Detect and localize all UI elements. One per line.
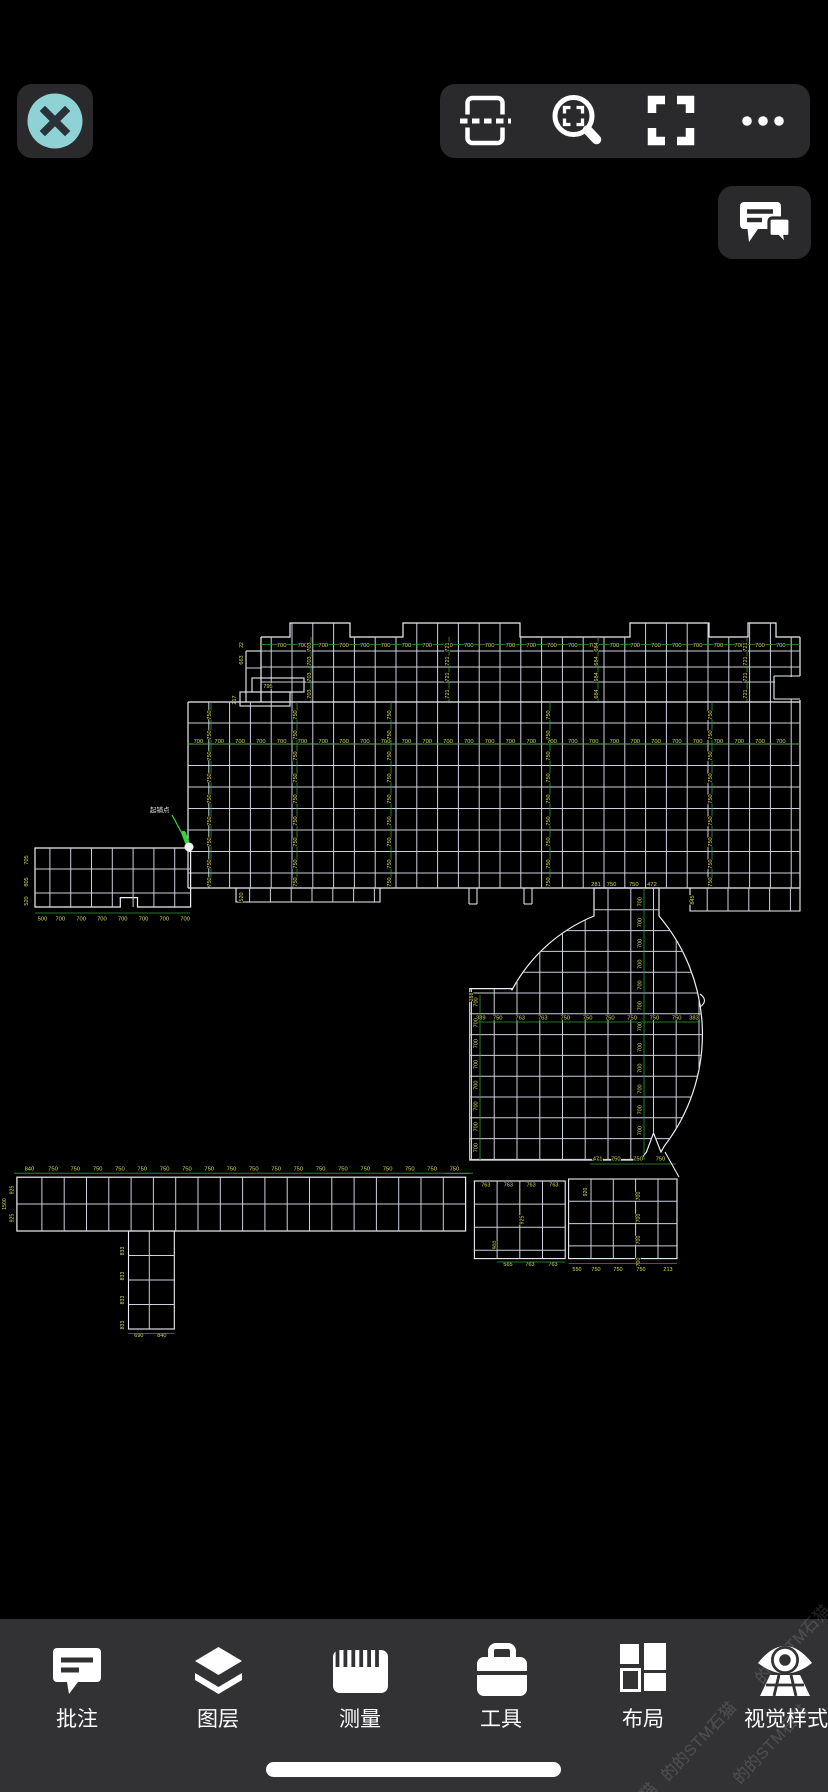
svg-text:833: 833 <box>120 1296 126 1305</box>
svg-text:471: 471 <box>593 1157 603 1163</box>
svg-text:700: 700 <box>638 1105 644 1114</box>
svg-text:845: 845 <box>690 895 696 904</box>
svg-text:750: 750 <box>293 710 299 719</box>
svg-text:700: 700 <box>474 1060 480 1069</box>
svg-text:703: 703 <box>307 689 313 698</box>
svg-text:750: 750 <box>271 1167 281 1173</box>
svg-text:750: 750 <box>207 794 213 803</box>
svg-text:700: 700 <box>734 739 744 745</box>
svg-text:700: 700 <box>638 1064 644 1073</box>
svg-text:750: 750 <box>293 773 299 782</box>
svg-text:700: 700 <box>474 1101 480 1110</box>
svg-text:721: 721 <box>445 672 451 681</box>
svg-text:721: 721 <box>445 689 451 698</box>
svg-text:281: 281 <box>591 882 601 888</box>
svg-text:500: 500 <box>38 917 48 923</box>
svg-text:925: 925 <box>10 1186 16 1195</box>
svg-text:750: 750 <box>591 1267 600 1273</box>
svg-text:705: 705 <box>24 855 30 864</box>
svg-text:700: 700 <box>318 739 328 745</box>
svg-text:700: 700 <box>474 1018 480 1027</box>
svg-text:925: 925 <box>519 1216 525 1225</box>
svg-text:750: 750 <box>48 1167 58 1173</box>
svg-text:750: 750 <box>207 730 213 739</box>
svg-text:750: 750 <box>546 751 552 760</box>
svg-text:700: 700 <box>443 739 453 745</box>
svg-text:213: 213 <box>663 1267 672 1273</box>
svg-text:700: 700 <box>118 917 128 923</box>
svg-text:920: 920 <box>583 1188 589 1197</box>
svg-text:700: 700 <box>610 739 620 745</box>
svg-text:700: 700 <box>638 1084 644 1093</box>
svg-text:750: 750 <box>450 1167 460 1173</box>
svg-text:750: 750 <box>182 1167 192 1173</box>
svg-text:700: 700 <box>638 918 644 927</box>
svg-text:750: 750 <box>387 837 393 846</box>
svg-text:750: 750 <box>708 710 714 719</box>
svg-text:750: 750 <box>293 730 299 739</box>
svg-text:700: 700 <box>636 1192 642 1201</box>
svg-text:700: 700 <box>381 643 391 649</box>
svg-text:750: 750 <box>70 1167 80 1173</box>
svg-text:750: 750 <box>207 816 213 825</box>
svg-text:700: 700 <box>360 739 370 745</box>
svg-text:700: 700 <box>194 739 204 745</box>
svg-text:700: 700 <box>485 739 495 745</box>
svg-text:703: 703 <box>307 642 313 651</box>
svg-text:700: 700 <box>755 739 765 745</box>
svg-text:763: 763 <box>504 1183 513 1189</box>
svg-text:750: 750 <box>546 773 552 782</box>
svg-text:700: 700 <box>776 739 786 745</box>
svg-text:700: 700 <box>318 643 328 649</box>
svg-text:805: 805 <box>24 877 30 886</box>
svg-text:700: 700 <box>693 739 703 745</box>
svg-text:700: 700 <box>693 643 703 649</box>
svg-text:750: 750 <box>405 1167 415 1173</box>
svg-text:700: 700 <box>651 643 661 649</box>
svg-text:750: 750 <box>546 816 552 825</box>
svg-text:763: 763 <box>548 1262 557 1268</box>
svg-text:763: 763 <box>527 1183 536 1189</box>
svg-text:750: 750 <box>546 730 552 739</box>
svg-text:750: 750 <box>115 1167 125 1173</box>
svg-text:750: 750 <box>633 1157 643 1163</box>
svg-text:750: 750 <box>607 882 617 888</box>
svg-text:1500: 1500 <box>2 1198 8 1210</box>
svg-text:750: 750 <box>613 1267 622 1273</box>
svg-text:900: 900 <box>493 1241 499 1250</box>
svg-text:700: 700 <box>464 739 474 745</box>
svg-text:700: 700 <box>422 643 432 649</box>
svg-text:750: 750 <box>383 1167 393 1173</box>
svg-text:750: 750 <box>207 773 213 782</box>
svg-text:700: 700 <box>589 739 599 745</box>
svg-text:750: 750 <box>708 816 714 825</box>
svg-text:700: 700 <box>636 1236 642 1245</box>
svg-text:750: 750 <box>387 859 393 868</box>
svg-text:750: 750 <box>493 1016 503 1022</box>
svg-text:750: 750 <box>387 794 393 803</box>
svg-text:684: 684 <box>594 656 600 665</box>
svg-text:684: 684 <box>594 689 600 698</box>
svg-text:700: 700 <box>256 739 266 745</box>
svg-text:750: 750 <box>546 794 552 803</box>
svg-text:700: 700 <box>402 739 412 745</box>
svg-text:700: 700 <box>474 1143 480 1152</box>
svg-text:700: 700 <box>638 1001 644 1010</box>
svg-text:750: 750 <box>387 816 393 825</box>
svg-text:700: 700 <box>610 643 620 649</box>
svg-text:700: 700 <box>638 1022 644 1031</box>
svg-text:700: 700 <box>636 1214 642 1223</box>
svg-text:833: 833 <box>120 1321 126 1330</box>
svg-text:795: 795 <box>263 684 272 690</box>
svg-text:763: 763 <box>549 1183 558 1189</box>
svg-text:750: 750 <box>293 794 299 803</box>
svg-text:700: 700 <box>474 1081 480 1090</box>
svg-text:700: 700 <box>526 643 536 649</box>
svg-text:750: 750 <box>605 1016 615 1022</box>
svg-text:750: 750 <box>546 710 552 719</box>
svg-text:721: 721 <box>445 656 451 665</box>
svg-text:700: 700 <box>638 939 644 948</box>
svg-text:750: 750 <box>583 1016 593 1022</box>
svg-text:763: 763 <box>481 1183 490 1189</box>
svg-text:750: 750 <box>611 1157 621 1163</box>
svg-text:750: 750 <box>204 1167 214 1173</box>
svg-text:750: 750 <box>656 1157 666 1163</box>
svg-text:750: 750 <box>293 859 299 868</box>
svg-text:520: 520 <box>239 892 245 901</box>
svg-text:750: 750 <box>293 1167 303 1173</box>
svg-text:750: 750 <box>249 1167 259 1173</box>
svg-text:700: 700 <box>277 643 287 649</box>
svg-text:700: 700 <box>76 917 86 923</box>
svg-text:750: 750 <box>708 837 714 846</box>
svg-text:472: 472 <box>647 882 657 888</box>
svg-text:750: 750 <box>672 1016 682 1022</box>
svg-text:700: 700 <box>568 739 578 745</box>
svg-text:925: 925 <box>10 1214 16 1223</box>
svg-text:700: 700 <box>159 917 169 923</box>
svg-text:700: 700 <box>714 643 724 649</box>
svg-text:750: 750 <box>629 882 639 888</box>
svg-text:700: 700 <box>638 897 644 906</box>
svg-text:565: 565 <box>503 1262 512 1268</box>
svg-text:663: 663 <box>239 655 245 664</box>
svg-text:750: 750 <box>636 1267 645 1273</box>
svg-text:起铺点: 起铺点 <box>150 805 170 814</box>
svg-text:700: 700 <box>755 643 765 649</box>
svg-text:750: 750 <box>546 837 552 846</box>
svg-text:550: 550 <box>572 1267 581 1273</box>
svg-text:750: 750 <box>650 1016 660 1022</box>
svg-text:288: 288 <box>469 993 475 1002</box>
svg-text:750: 750 <box>293 877 299 886</box>
svg-text:700: 700 <box>506 643 516 649</box>
svg-text:22: 22 <box>239 642 245 648</box>
svg-text:700: 700 <box>651 739 661 745</box>
svg-text:750: 750 <box>387 751 393 760</box>
svg-text:703: 703 <box>307 672 313 681</box>
svg-text:750: 750 <box>207 837 213 846</box>
svg-text:721: 721 <box>743 642 749 651</box>
svg-text:750: 750 <box>708 794 714 803</box>
svg-text:750: 750 <box>207 710 213 719</box>
svg-text:750: 750 <box>708 859 714 868</box>
svg-text:684: 684 <box>594 642 600 651</box>
svg-text:763: 763 <box>515 1016 525 1022</box>
svg-text:700: 700 <box>180 917 190 923</box>
svg-text:750: 750 <box>560 1016 570 1022</box>
svg-text:700: 700 <box>672 643 682 649</box>
svg-text:700: 700 <box>474 1039 480 1048</box>
svg-text:700: 700 <box>638 980 644 989</box>
svg-text:833: 833 <box>120 1247 126 1256</box>
svg-text:700: 700 <box>97 917 107 923</box>
svg-text:750: 750 <box>627 1016 637 1022</box>
svg-text:700: 700 <box>214 739 224 745</box>
svg-text:700: 700 <box>526 739 536 745</box>
svg-text:721: 721 <box>445 642 451 651</box>
svg-text:700: 700 <box>464 643 474 649</box>
svg-text:700: 700 <box>485 643 495 649</box>
svg-text:700: 700 <box>298 739 308 745</box>
svg-text:383: 383 <box>689 1016 699 1022</box>
svg-text:750: 750 <box>137 1167 147 1173</box>
svg-text:750: 750 <box>546 877 552 886</box>
svg-text:750: 750 <box>227 1167 237 1173</box>
svg-text:700: 700 <box>474 1122 480 1131</box>
svg-text:700: 700 <box>638 1126 644 1135</box>
svg-text:700: 700 <box>339 739 349 745</box>
svg-text:750: 750 <box>316 1167 326 1173</box>
svg-text:750: 750 <box>207 877 213 886</box>
svg-text:700: 700 <box>298 643 308 649</box>
svg-text:750: 750 <box>160 1167 170 1173</box>
svg-text:700: 700 <box>339 643 349 649</box>
svg-text:700: 700 <box>547 643 557 649</box>
svg-text:750: 750 <box>93 1167 103 1173</box>
svg-text:684: 684 <box>594 672 600 681</box>
svg-text:700: 700 <box>277 739 287 745</box>
svg-text:750: 750 <box>207 751 213 760</box>
svg-text:750: 750 <box>360 1167 370 1173</box>
svg-text:700: 700 <box>638 1043 644 1052</box>
svg-text:750: 750 <box>387 877 393 886</box>
svg-text:750: 750 <box>293 837 299 846</box>
svg-text:703: 703 <box>307 656 313 665</box>
svg-text:700: 700 <box>360 643 370 649</box>
svg-text:700: 700 <box>422 739 432 745</box>
svg-text:750: 750 <box>387 730 393 739</box>
svg-text:840: 840 <box>25 1167 35 1173</box>
svg-text:750: 750 <box>708 877 714 886</box>
svg-text:750: 750 <box>293 816 299 825</box>
svg-text:700: 700 <box>55 917 65 923</box>
svg-text:700: 700 <box>714 739 724 745</box>
svg-text:750: 750 <box>293 751 299 760</box>
svg-text:763: 763 <box>525 1262 534 1268</box>
svg-text:700: 700 <box>672 739 682 745</box>
svg-text:700: 700 <box>630 643 640 649</box>
svg-text:700: 700 <box>506 739 516 745</box>
svg-text:700: 700 <box>568 643 578 649</box>
svg-text:750: 750 <box>708 730 714 739</box>
svg-text:217: 217 <box>232 695 238 704</box>
svg-text:700: 700 <box>630 739 640 745</box>
svg-text:721: 721 <box>743 656 749 665</box>
svg-text:750: 750 <box>546 859 552 868</box>
svg-text:700: 700 <box>235 739 245 745</box>
svg-text:750: 750 <box>338 1167 348 1173</box>
svg-text:721: 721 <box>743 672 749 681</box>
svg-text:750: 750 <box>207 859 213 868</box>
svg-text:750: 750 <box>427 1167 437 1173</box>
svg-text:750: 750 <box>387 710 393 719</box>
svg-text:750: 750 <box>708 773 714 782</box>
svg-text:700: 700 <box>139 917 149 923</box>
svg-text:520: 520 <box>24 896 30 905</box>
svg-text:700: 700 <box>636 1258 642 1267</box>
svg-text:763: 763 <box>538 1016 548 1022</box>
svg-text:700: 700 <box>638 960 644 969</box>
svg-text:721: 721 <box>743 689 749 698</box>
svg-text:750: 750 <box>387 773 393 782</box>
svg-text:750: 750 <box>708 751 714 760</box>
svg-text:833: 833 <box>120 1272 126 1281</box>
svg-text:700: 700 <box>402 643 412 649</box>
svg-text:700: 700 <box>776 643 786 649</box>
